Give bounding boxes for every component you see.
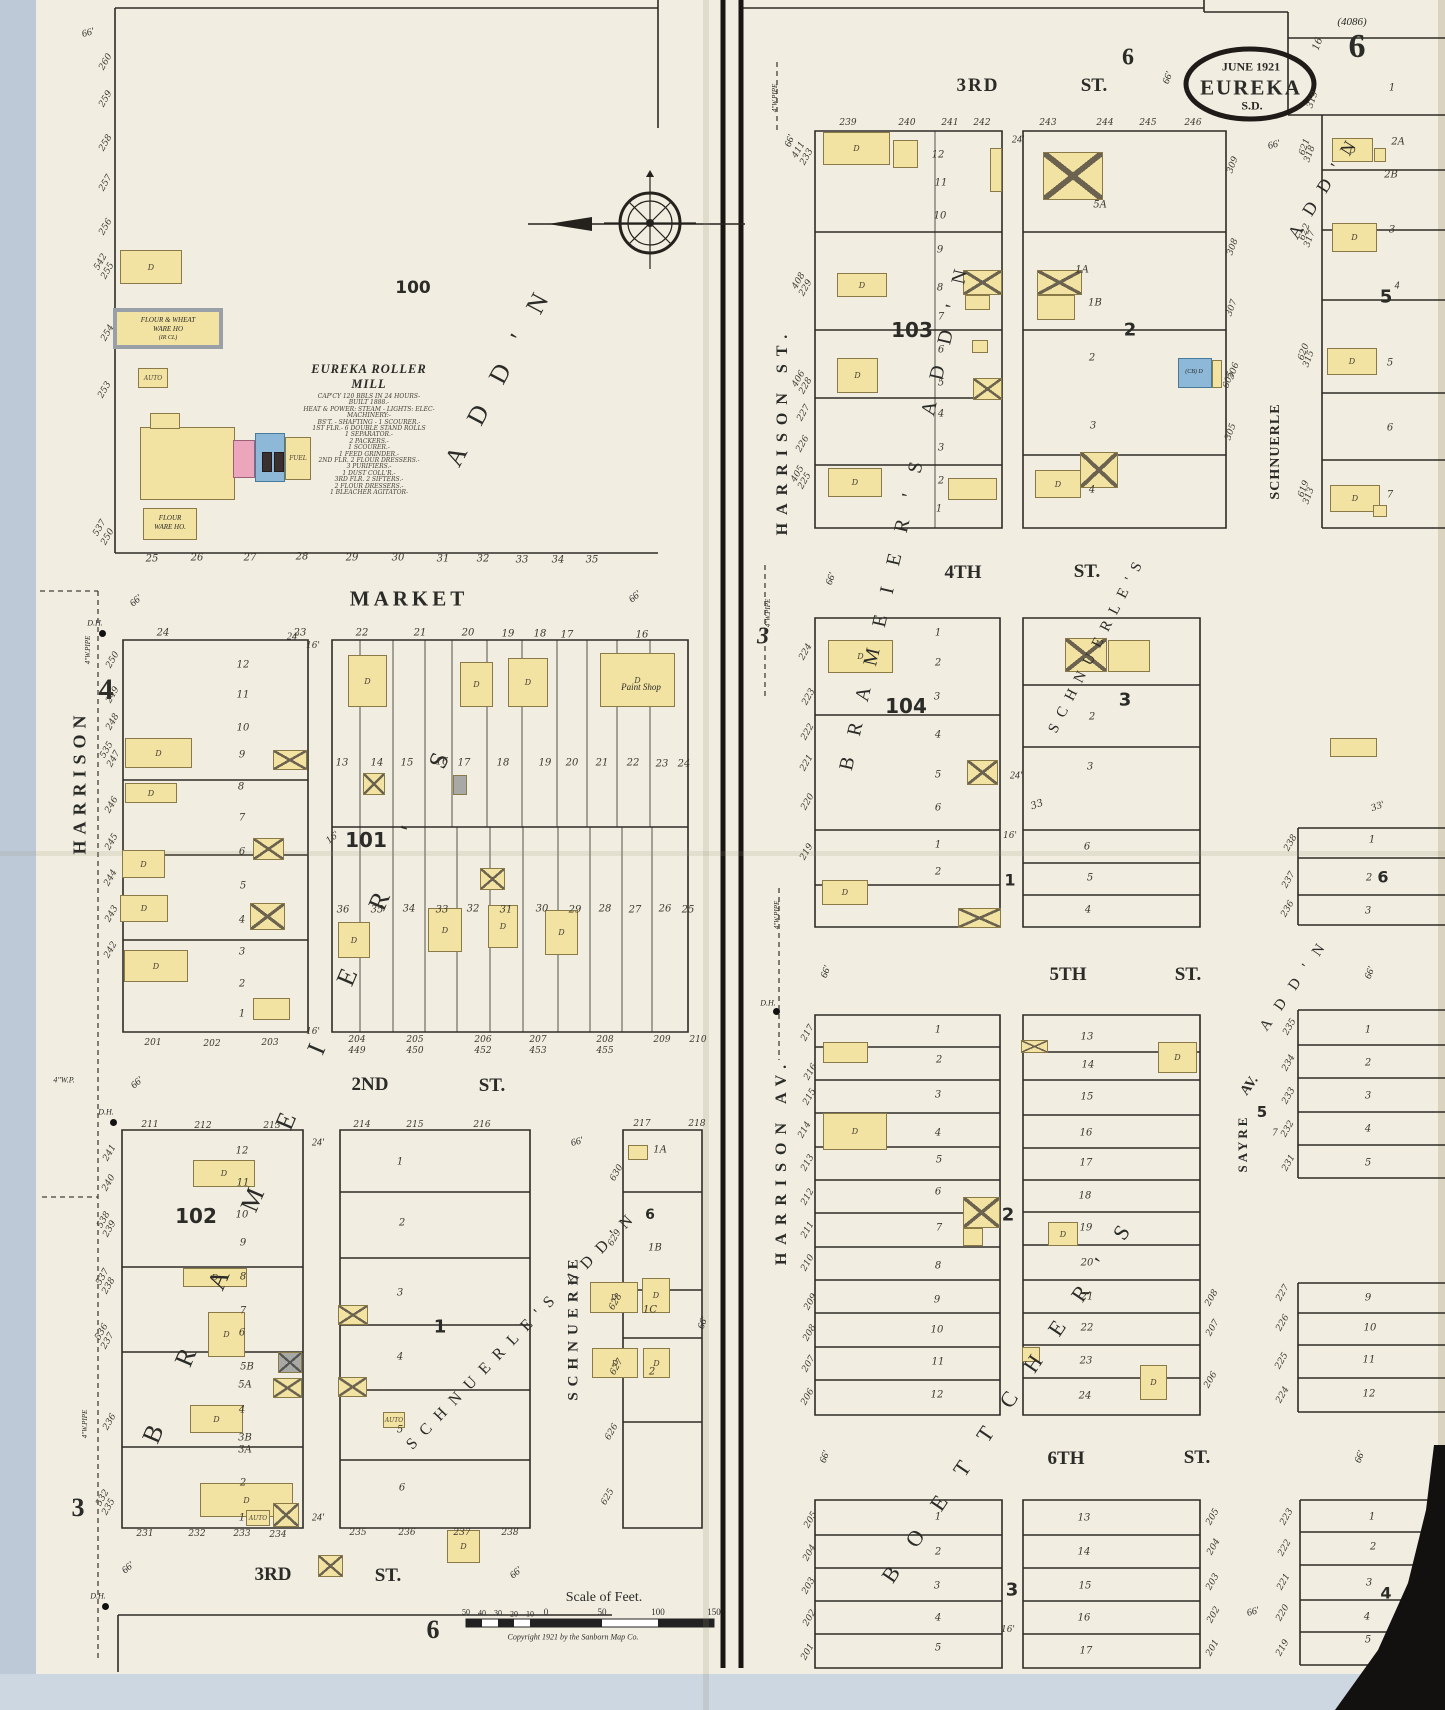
sheet-number: 6 xyxy=(1122,45,1134,72)
sanborn-map-sheet: DAUTOFUELDDDDDDDDDDDDDDDDDDAUTODDAUTODDD… xyxy=(0,0,1445,1710)
parcel-number: 4 xyxy=(1395,281,1400,292)
parcel-number: 12 xyxy=(931,1390,944,1401)
building-use-label: D xyxy=(442,926,448,935)
parcel-number: 234 xyxy=(269,1530,286,1540)
street-label: ST. xyxy=(1074,561,1101,583)
parcel-number: 211 xyxy=(141,1120,158,1130)
parcel-number: 1 xyxy=(935,1025,941,1036)
building-footprint xyxy=(363,773,385,795)
building-footprint xyxy=(480,868,505,890)
building-use-label: AUTO xyxy=(385,1417,403,1424)
block-number: 104 xyxy=(885,694,927,718)
parcel-number: 237 xyxy=(453,1528,470,1538)
building-footprint: D xyxy=(120,250,182,284)
street-label: SAYRE xyxy=(1235,1115,1251,1176)
street-label: HARRISON xyxy=(70,709,91,860)
water-pipe-label: 4"W.PIPE xyxy=(773,901,781,930)
parcel-number: 3B xyxy=(238,1433,252,1444)
parcel-number: 9 xyxy=(1365,1293,1371,1304)
map-title-date: JUNE 1921 xyxy=(1222,60,1280,75)
parcel-number: 13 xyxy=(1078,1513,1091,1524)
parcel-number: 1 xyxy=(935,840,941,851)
parcel-number: 2 xyxy=(1089,353,1095,364)
building-footprint xyxy=(967,760,998,785)
block-number: 3 xyxy=(1119,690,1132,711)
hydrant-label: D.H. xyxy=(760,999,776,1008)
parcel-number: 3A xyxy=(238,1445,252,1456)
hydrant-label: D.H. xyxy=(87,619,103,628)
building-footprint: AUTO xyxy=(246,1510,270,1526)
street-label: 2ND xyxy=(352,1074,389,1096)
building-use-label: D xyxy=(141,904,147,913)
parcel-number: 1 xyxy=(1369,1512,1375,1523)
parcel-number: 2 xyxy=(935,658,941,669)
building-footprint xyxy=(453,775,467,795)
hydrant-label: D.H. xyxy=(98,1108,114,1117)
parcel-number: 12 xyxy=(236,1146,249,1157)
plate-ref: (4086) xyxy=(1337,16,1366,28)
parcel-number: 16 xyxy=(1080,1128,1093,1139)
parcel-number: 217 xyxy=(633,1119,650,1129)
parcel-number: 2 xyxy=(936,1055,942,1066)
parcel-number: 18 xyxy=(497,758,510,769)
parcel-number: 2A xyxy=(1391,137,1405,148)
parcel-number: 246 xyxy=(1184,118,1201,128)
parcel-number: 5 xyxy=(936,1155,942,1166)
parcel-number: 5 xyxy=(935,770,941,781)
parcel-number: 7 xyxy=(936,1223,942,1234)
building-footprint: D xyxy=(120,895,168,922)
street-label: 3RD xyxy=(955,75,1000,97)
parcel-number: 205 xyxy=(406,1035,423,1045)
parcel-number: 10 xyxy=(1364,1323,1377,1334)
building-footprint xyxy=(1212,360,1222,388)
building-use-label: D xyxy=(525,678,531,687)
parcel-number: 10 xyxy=(931,1325,944,1336)
block-number: 3 xyxy=(1006,1580,1019,1601)
parcel-number: 18 xyxy=(1079,1191,1092,1202)
parcel-number: 1 xyxy=(935,628,941,639)
building-footprint xyxy=(972,340,988,353)
dimension: 24' xyxy=(1012,135,1024,146)
building-footprint xyxy=(1330,738,1377,757)
building-use-label: D xyxy=(213,1415,219,1424)
building-use-label: D xyxy=(221,1169,227,1178)
building-footprint: D xyxy=(125,783,177,803)
dimension: 24' xyxy=(1010,771,1022,782)
parcel-number: 22 xyxy=(1081,1323,1094,1334)
building-footprint: D xyxy=(122,850,165,878)
building-use-label: D xyxy=(153,962,159,971)
parcel-number: 3 xyxy=(935,1090,941,1101)
mill-note-line: 1 BLEACHER AGITATOR- xyxy=(296,490,442,496)
block-number: 101 xyxy=(345,828,387,852)
building-footprint: D xyxy=(545,910,578,955)
sheet-number: 6 xyxy=(427,1615,440,1645)
copyright: Copyright 1921 by the Sanborn Map Co. xyxy=(508,1633,639,1642)
parcel-number: 2 xyxy=(1365,1058,1371,1069)
parcel-number: 21 xyxy=(1081,1292,1094,1303)
parcel-number: 4 xyxy=(935,1128,941,1139)
parcel-number: 24 xyxy=(157,628,170,639)
mill-description: EUREKA ROLLER MILL CAP'CY 120 BBLS IN 24… xyxy=(296,362,442,497)
parcel-number: 21 xyxy=(596,758,609,769)
parcel-number: 213 xyxy=(263,1121,280,1131)
parcel-number: 215 xyxy=(406,1120,423,1130)
building-use-label: D xyxy=(859,281,865,290)
parcel-number: 3 xyxy=(1087,762,1093,773)
building-footprint: D xyxy=(837,358,878,393)
building-use-label: D xyxy=(223,1330,229,1339)
building-use-label: D xyxy=(1055,480,1061,489)
parcel-number: 201 xyxy=(144,1038,161,1048)
sheet-number: 6 xyxy=(1349,28,1366,66)
parcel-number: 17 xyxy=(458,758,471,769)
parcel-number: 6 xyxy=(1084,842,1090,853)
parcel-number: 11 xyxy=(1363,1355,1376,1366)
building-footprint xyxy=(338,1377,367,1397)
parcel-number: 236 xyxy=(398,1528,415,1538)
street-label: 3RD xyxy=(255,1564,292,1586)
scale-bar xyxy=(466,1619,714,1627)
parcel-number: 3 xyxy=(239,947,245,958)
parcel-number: 12 xyxy=(237,660,250,671)
parcel-number: 210 xyxy=(689,1035,706,1045)
parcel-number: 22 xyxy=(627,758,640,769)
parcel-number: 7 xyxy=(239,813,245,824)
parcel-number: 1A xyxy=(1075,265,1089,276)
block-number: 100 xyxy=(395,278,431,298)
parcel-number: 32 xyxy=(467,904,480,915)
parcel-number: 14 xyxy=(371,758,384,769)
building-footprint: D xyxy=(643,1348,670,1378)
parcel-number: 2 xyxy=(935,867,941,878)
parcel-number: 6 xyxy=(1387,423,1393,434)
parcel-number: 6 xyxy=(938,345,944,356)
parcel-number: 7 xyxy=(240,1306,246,1317)
block-number: 2 xyxy=(1002,1205,1015,1226)
building-use-label: D xyxy=(853,144,859,153)
hydrant-label: D.H. xyxy=(90,1592,106,1601)
parcel-number: 1 xyxy=(1369,835,1375,846)
building-label: WARE HO. xyxy=(154,523,186,531)
parcel-number: 14 xyxy=(1078,1547,1091,1558)
street-label: HARRISON ST. xyxy=(774,327,792,544)
building-use-label: D xyxy=(460,1542,466,1551)
water-pipe-label: 4"W.PIPE xyxy=(84,636,92,665)
parcel-number: 3 xyxy=(934,692,940,703)
parcel-number: 5 xyxy=(397,1425,403,1436)
parcel-number: 31 xyxy=(500,905,513,916)
parcel-number: 16 xyxy=(1078,1613,1091,1624)
parcel-number: 4 xyxy=(935,1613,941,1624)
parcel-number: 238 xyxy=(501,1528,518,1538)
parcel-number: 2 xyxy=(239,979,245,990)
mill-name: EUREKA ROLLER MILL xyxy=(296,362,442,392)
street-label: HARRISON AV. xyxy=(773,1057,791,1273)
building-footprint xyxy=(338,1305,368,1325)
parcel-number: 245 xyxy=(1139,118,1156,128)
building-footprint: D xyxy=(822,880,868,905)
building-footprint xyxy=(250,903,285,930)
parcel-number: 1 xyxy=(239,1009,245,1020)
street-label: SCHNUERLE xyxy=(1268,403,1284,500)
building-use-label: D xyxy=(1352,494,1358,503)
parcel-number: 1C xyxy=(643,1305,657,1316)
parcel-number: 5 xyxy=(1087,873,1093,884)
building-footprint xyxy=(965,295,990,310)
map-title-city: EUREKA xyxy=(1198,76,1302,101)
street-label: ST. xyxy=(1081,75,1108,97)
parcel-number: 33 xyxy=(436,905,449,916)
parcel-number: 15 xyxy=(401,758,414,769)
parcel-number: 10 xyxy=(934,211,947,222)
dimension: 24' xyxy=(312,1513,324,1524)
building-footprint xyxy=(262,452,272,472)
parcel-number: 7 xyxy=(1387,490,1393,501)
parcel-number: 6 xyxy=(935,1187,941,1198)
parcel-number: 2 xyxy=(1089,712,1095,723)
parcel-number: 2 xyxy=(649,1367,655,1378)
parcel-number: 4 xyxy=(239,1405,245,1416)
parcel-number: 214 xyxy=(353,1120,370,1130)
parcel-number: 22 xyxy=(356,628,369,639)
parcel-number: 5B xyxy=(240,1362,254,1373)
parcel-number: 28 xyxy=(599,904,612,915)
building-footprint xyxy=(318,1555,343,1577)
parcel-number: 5 xyxy=(1387,358,1393,369)
street-label: 4TH xyxy=(945,562,982,584)
parcel-number: 24 xyxy=(1079,1391,1092,1402)
building-use-label: D xyxy=(653,1291,659,1300)
parcel-number: 34 xyxy=(403,904,416,915)
railroad-track xyxy=(723,0,741,1668)
parcel-number: 26 xyxy=(191,553,204,564)
parcel-number: 1A xyxy=(653,1145,667,1156)
parcel-number: 24 xyxy=(678,759,691,770)
building-footprint xyxy=(278,1352,302,1373)
block-number: 1 xyxy=(1004,871,1015,890)
building-use-label: D xyxy=(842,888,848,897)
parcel-number: 5 xyxy=(938,378,944,389)
parcel-number: 216 xyxy=(473,1120,490,1130)
building-footprint xyxy=(990,148,1002,192)
water-pipe-label: 4"W.P. xyxy=(53,1076,74,1085)
block-number: 5 xyxy=(1380,287,1393,308)
building-footprint xyxy=(1108,640,1150,672)
parcel-number: 11 xyxy=(932,1357,945,1368)
parcel-number: 6 xyxy=(239,847,245,858)
building-use-label: D xyxy=(243,1496,249,1505)
water-pipe-label: 4"W.PIPE xyxy=(81,1410,89,1439)
scale-tick: 150 xyxy=(707,1607,721,1617)
block-number: 5 xyxy=(1257,1103,1267,1121)
parcel-number: 3 xyxy=(1090,421,1096,432)
building-footprint: D xyxy=(837,273,887,297)
parcel-number: 11 xyxy=(935,178,948,189)
parcel-number: 2 xyxy=(938,476,944,487)
parcel-number: 12 xyxy=(932,150,945,161)
parcel-number: 23 xyxy=(1080,1356,1093,1367)
building-use-label: D xyxy=(473,680,479,689)
parcel-number: 2 xyxy=(1370,1542,1376,1553)
building-use-label: D xyxy=(148,263,154,272)
parcel-number: 1 xyxy=(397,1157,403,1168)
block-number: 103 xyxy=(891,318,933,342)
parcel-number: 3 xyxy=(1389,225,1395,236)
building-footprint: D xyxy=(1048,1222,1078,1246)
parcel-number: 202 xyxy=(203,1039,220,1049)
parcel-number: 13 xyxy=(336,758,349,769)
scale-tick: 50 xyxy=(462,1608,470,1617)
building-use-label: D xyxy=(1351,233,1357,242)
building-footprint xyxy=(150,413,180,429)
parcel-number: 34 xyxy=(552,555,565,566)
block-number: 6 xyxy=(1377,868,1388,887)
parcel-number: 21 xyxy=(414,628,427,639)
scale-tick: 30 xyxy=(494,1609,502,1618)
parcel-number: 4 xyxy=(239,915,245,926)
parcel-number: 208 xyxy=(596,1035,613,1045)
parcel-number: 10 xyxy=(236,1210,249,1221)
parcel-number: 16 xyxy=(636,630,649,641)
building-label: Paint Shop xyxy=(621,682,661,692)
parcel-number: 3 xyxy=(1366,1578,1372,1589)
building-use-label: D xyxy=(364,677,370,686)
parcel-number: 11 xyxy=(237,690,250,701)
building-footprint: D xyxy=(508,658,548,707)
building-footprint xyxy=(1373,505,1387,517)
parcel-number: 17 xyxy=(1080,1646,1093,1657)
parcel-number: 244 xyxy=(1096,118,1113,128)
parcel-number: 23 xyxy=(656,759,669,770)
street-label: ST. xyxy=(1184,1447,1211,1469)
parcel-number: 203 xyxy=(261,1038,278,1048)
map-title-state: S.D. xyxy=(1241,99,1262,114)
parcel-number: 16' xyxy=(306,1027,320,1037)
building-footprint xyxy=(948,478,997,500)
parcel-number: 19 xyxy=(502,629,515,640)
parcel-number: 8 xyxy=(937,283,943,294)
block-number: 102 xyxy=(175,1204,217,1228)
dimension: 24' xyxy=(312,1138,324,1149)
parcel-number: 3 xyxy=(1365,1091,1371,1102)
parcel-number: 206 xyxy=(474,1035,491,1045)
parcel-number: 29 xyxy=(569,905,582,916)
building-footprint: D xyxy=(1158,1042,1197,1073)
parcel-number: 3 xyxy=(397,1288,403,1299)
parcel-number: 33 xyxy=(516,555,529,566)
parcel-number: 27 xyxy=(244,553,257,564)
parcel-number: 209 xyxy=(653,1035,670,1045)
parcel-number: 207 xyxy=(529,1035,546,1045)
parcel-number: 231 xyxy=(136,1529,153,1539)
parcel-number: 5A xyxy=(238,1380,252,1391)
building-footprint xyxy=(1080,452,1118,488)
parcel-number: 4 xyxy=(1365,1124,1371,1135)
building-use-label: AUTO xyxy=(144,375,162,382)
hydrant-dot xyxy=(99,630,106,637)
building-footprint xyxy=(273,1378,302,1398)
building-footprint xyxy=(1043,152,1103,200)
block-number: 2 xyxy=(1124,320,1137,341)
building-footprint: D xyxy=(823,132,890,165)
parcel-number: 15 xyxy=(1079,1581,1092,1592)
parcel-number: 2 xyxy=(240,1478,246,1489)
parcel-number: 240 xyxy=(898,118,915,128)
building-footprint xyxy=(963,1197,1000,1228)
building-use-label: D xyxy=(1174,1053,1180,1062)
parcel-number: 241 xyxy=(941,118,958,128)
parcel-number: 32 xyxy=(477,554,490,565)
parcel-number: 15 xyxy=(1081,1092,1094,1103)
building-use-label: D xyxy=(1349,357,1355,366)
parcel-number: 1 xyxy=(1389,83,1395,94)
parcel-number: 14 xyxy=(1082,1060,1095,1071)
parcel-number: 2 xyxy=(1366,873,1372,884)
parcel-number: 7 xyxy=(1273,1128,1278,1139)
hydrant-dot xyxy=(110,1119,117,1126)
building-footprint: D xyxy=(828,468,882,497)
parcel-number: 19 xyxy=(539,758,552,769)
hydrant-dot xyxy=(102,1603,109,1610)
parcel-number: 20 xyxy=(1081,1258,1094,1269)
parcel-number: 453 xyxy=(529,1046,546,1056)
parcel-number: 218 xyxy=(688,1119,705,1129)
scale-tick: 40 xyxy=(478,1609,486,1618)
building-footprint xyxy=(1021,1040,1048,1053)
parcel-number: 4 xyxy=(1364,1612,1370,1623)
building-footprint xyxy=(253,838,284,860)
building-footprint xyxy=(233,440,255,478)
scale-label: Scale of Feet. xyxy=(566,1590,643,1606)
parcel-number: 6 xyxy=(399,1483,405,1494)
building-use-label: AUTO xyxy=(249,1515,267,1522)
building-label: FLOUR & WHEAT xyxy=(141,316,196,324)
parcel-number: 6 xyxy=(935,803,941,814)
parcel-number: 242 xyxy=(973,118,990,128)
parcel-number: 239 xyxy=(839,118,856,128)
parcel-number: 243 xyxy=(1039,118,1056,128)
parcel-number: 30 xyxy=(536,904,549,915)
parcel-number: 4 xyxy=(1089,485,1095,496)
parcel-number: 3 xyxy=(938,443,944,454)
water-pipe-label: 4"W.PIPE xyxy=(764,599,772,628)
building-footprint xyxy=(253,998,290,1020)
parcel-number: 2 xyxy=(399,1218,405,1229)
parcel-number: 5 xyxy=(240,881,246,892)
parcel-number: 5A xyxy=(1093,200,1107,211)
street-label: ST. xyxy=(1175,964,1202,986)
parcel-number: 13 xyxy=(1081,1032,1094,1043)
parcel-number: 36 xyxy=(337,905,350,916)
building-footprint xyxy=(273,1503,299,1527)
parcel-number: 1 xyxy=(1365,1025,1371,1036)
building-use-label: D xyxy=(854,371,860,380)
block-number: 4 xyxy=(1380,1584,1391,1603)
building-footprint: AUTO xyxy=(138,368,168,388)
parcel-number: 9 xyxy=(937,245,943,256)
building-label: (CB) D xyxy=(1185,369,1203,375)
parcel-number: 9 xyxy=(934,1295,940,1306)
building-footprint xyxy=(1037,295,1075,320)
parcel-number: 25 xyxy=(682,905,695,916)
building-footprint xyxy=(274,452,284,472)
parcel-number: 35 xyxy=(371,905,384,916)
parcel-number: 19 xyxy=(1080,1223,1093,1234)
building-footprint: D xyxy=(1332,223,1377,252)
parcel-number: 16' xyxy=(1003,831,1017,841)
